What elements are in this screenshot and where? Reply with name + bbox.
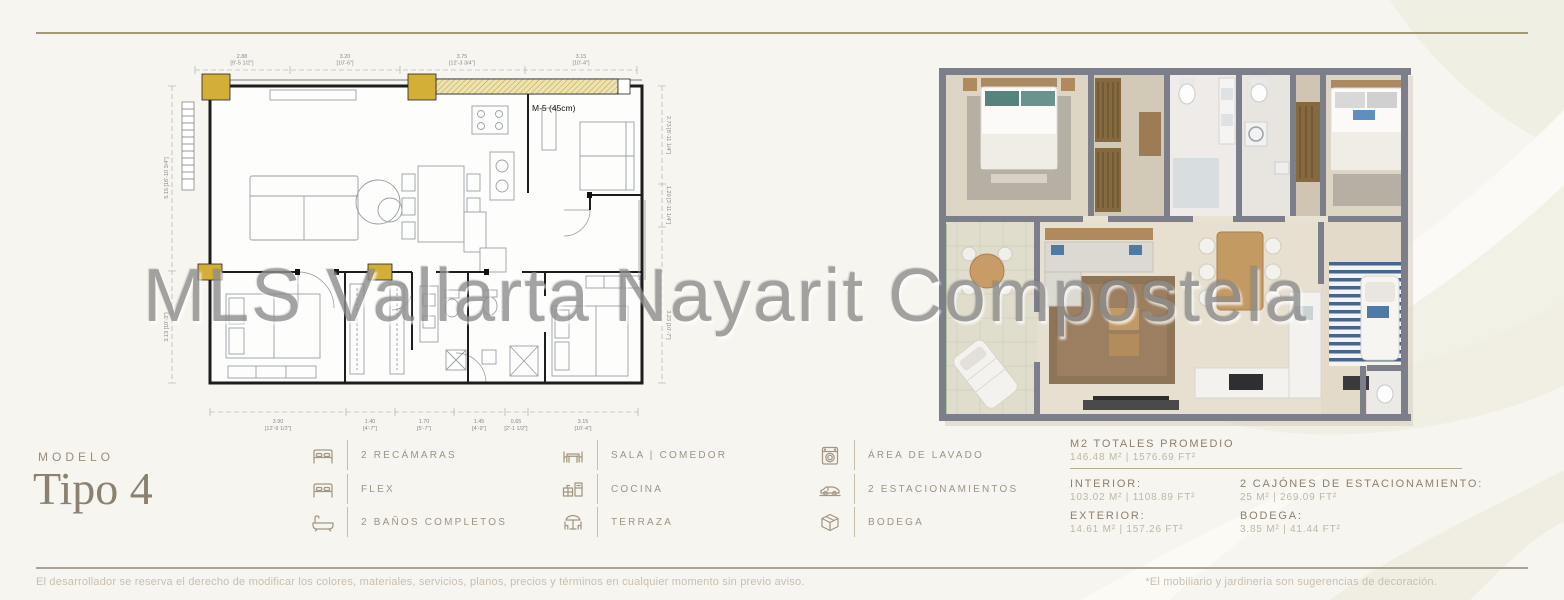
dim-right-1: 2.73 [8'-11 1/4"] [665,116,671,155]
amenity-bodega: BODEGA [817,507,924,537]
top-divider-line [36,32,1528,34]
plan-wall-note: M-5 (45cm) [532,103,576,113]
stats-exterior-label: EXTERIOR: [1070,510,1146,522]
amenity-separator [597,507,598,537]
footer-disclaimer-left: El desarrollador se reserva el derecho d… [36,576,805,588]
stats-total-value: 146.48 M² | 1576.69 FT² [1070,452,1196,463]
flex-bed-icon [310,479,336,499]
dim-bottom-3-ft: [5'-7"] [417,426,431,432]
amenity-label: 2 ESTACIONAMIENTOS [868,484,1018,495]
watermark-text: MLS Vallarta Nayarit Compostela [143,252,1443,338]
stats-storage-value: 3.85 M² | 41.44 FT² [1240,524,1341,535]
dim-bottom-4-ft: [4'-9"] [472,426,486,432]
amenity-separator [597,440,598,470]
amenity-label: BODEGA [868,517,924,528]
dim-top-4-ft: [10'-4"] [572,61,590,67]
stats-interior-value: 103.02 M² | 1108.89 FT² [1070,492,1195,503]
dim-top-4-m: 3.15 [576,54,587,60]
amenity-label: ÁREA DE LAVADO [868,450,984,461]
dim-top-2-m: 3.20 [340,54,351,60]
dim-bottom-5-ft: [2'-1 1/2"] [504,426,528,432]
stats-parking-value: 25 M² | 269.09 FT² [1240,492,1337,503]
amenity-separator [347,474,348,504]
amenity-label: TERRAZA [611,517,673,528]
dim-bottom-6-m: 3.15 [578,419,589,425]
stats-total-label: M2 TOTALES PROMEDIO [1070,438,1234,450]
dim-bottom-5-m: 0.65 [511,419,522,425]
dim-top-3-ft: [12'-3 3/4"] [449,61,476,67]
amenity-label: COCINA [611,484,663,495]
amenity-separator [347,440,348,470]
model-name: Tipo 4 [33,462,153,515]
amenity-recamaras: 2 RECÁMARAS [310,440,457,470]
dining-table-icon [560,445,586,465]
dim-bottom-6-ft: [10'-4"] [574,426,592,432]
dim-top-3-m: 3.75 [457,54,468,60]
render-bedroom-left [963,78,1075,200]
amenity-estacionamientos: 2 ESTACIONAMIENTOS [817,474,1018,504]
terrace-icon [560,512,586,532]
floorplan-2d-drawing: 2.88 [9'-5 1/2"] 3.20 [10'-6"] 3.75 [12'… [150,50,695,445]
dim-top-2-ft: [10'-6"] [336,61,354,67]
dim-bottom-1-ft: [12'-9 1/2"] [265,426,292,432]
amenity-banos: 2 BAÑOS COMPLETOS [310,507,507,537]
amenity-separator [854,474,855,504]
bed-icon [310,445,336,465]
dim-bottom-2-ft: [4'-7"] [363,426,377,432]
amenity-terraza: TERRAZA [560,507,673,537]
dim-bottom-2-m: 1.40 [365,419,376,425]
amenity-area-lavado: ÁREA DE LAVADO [817,440,984,470]
amenity-separator [347,507,348,537]
stats-storage-label: BODEGA: [1240,510,1303,522]
car-icon [817,479,843,499]
bathtub-icon [310,512,336,532]
stats-divider [1070,468,1462,469]
storage-box-icon [817,512,843,532]
amenity-separator [854,507,855,537]
footer-divider-line [36,567,1528,569]
stats-interior-label: INTERIOR: [1070,478,1142,490]
floorplan-3d-render [933,62,1418,427]
amenity-label: 2 RECÁMARAS [361,450,457,461]
kitchen-icon [560,479,586,499]
dim-bottom-3-m: 1.70 [419,419,430,425]
stats-parking-label: 2 CAJÓNES DE ESTACIONAMIENTO: [1240,478,1483,490]
plan-louver-screen [182,102,194,190]
amenity-sala-comedor: SALA | COMEDOR [560,440,727,470]
render-bedroom-right [1331,80,1403,206]
amenity-cocina: COCINA [560,474,663,504]
footer-disclaimer-right: *El mobiliario y jardinería son sugerenc… [1145,576,1437,588]
amenity-label: FLEX [361,484,395,495]
dim-top-1-ft: [9'-5 1/2"] [230,61,254,67]
dim-bottom-1-m: 3.90 [273,419,284,425]
washing-machine-icon [817,445,843,465]
dim-bottom-4-m: 1.45 [474,419,485,425]
amenity-label: SALA | COMEDOR [611,450,727,461]
dim-top-1-m: 2.88 [237,54,248,60]
amenity-separator [854,440,855,470]
dim-left-1: 5.15 [16'-10 3/4"] [164,157,170,199]
amenity-separator [597,474,598,504]
stats-exterior-value: 14.61 M² | 157.26 FT² [1070,524,1183,535]
amenity-flex: FLEX [310,474,395,504]
dim-right-2: 1.20 [3'-11 1/4"] [665,186,671,225]
amenity-label: 2 BAÑOS COMPLETOS [361,517,507,528]
brochure-page: 2.88 [9'-5 1/2"] 3.20 [10'-6"] 3.75 [12'… [0,0,1564,600]
